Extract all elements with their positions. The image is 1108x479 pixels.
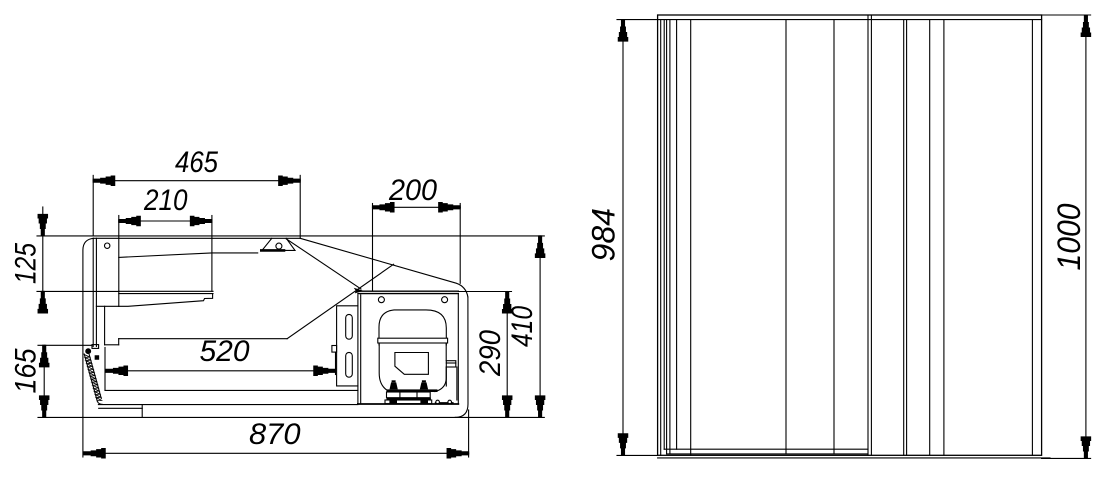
svg-text:210: 210 <box>143 184 188 217</box>
svg-text:870: 870 <box>249 418 301 451</box>
svg-text:984: 984 <box>586 208 622 262</box>
svg-text:165: 165 <box>10 348 43 393</box>
svg-text:1000: 1000 <box>1051 203 1087 270</box>
svg-text:125: 125 <box>10 243 43 284</box>
svg-text:520: 520 <box>200 335 250 368</box>
svg-text:200: 200 <box>388 174 437 207</box>
svg-text:410: 410 <box>506 306 539 347</box>
svg-text:465: 465 <box>175 146 218 179</box>
svg-text:290: 290 <box>474 330 507 377</box>
